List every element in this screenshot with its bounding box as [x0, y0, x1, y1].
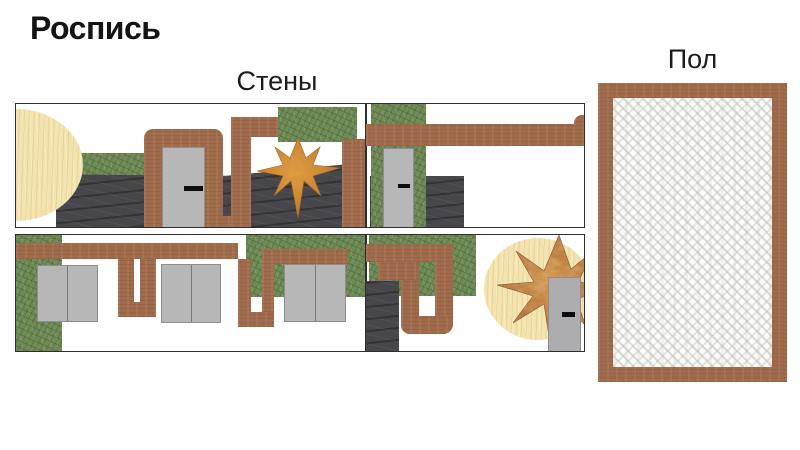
pipe-horizontal-band [366, 124, 585, 146]
wardrobe-doors [284, 264, 346, 322]
pipe-u-gap [134, 259, 140, 302]
door-leaf [38, 266, 68, 321]
starburst-motif [251, 132, 363, 228]
page-title: Роспись [30, 10, 160, 47]
mural-design-slide: Роспись Стены Пол [0, 0, 800, 450]
pipe-loop-hole [251, 297, 262, 312]
door-leaf [162, 265, 192, 322]
door [383, 148, 414, 228]
pipe-horizontal-band [16, 243, 238, 259]
door-handle [562, 312, 575, 317]
pipe-horizontal-band-2 [262, 249, 348, 264]
door-leaf [68, 266, 97, 321]
pipe-bottom-segment [238, 312, 274, 327]
floor-section-label: Пол [630, 44, 755, 75]
floor-plan-frame [598, 83, 787, 382]
slate-block [366, 281, 399, 352]
door-handle [398, 184, 410, 188]
door-leaf [316, 265, 346, 321]
floor-weave-pattern [613, 98, 772, 367]
pipe-spiral-inner-leg [401, 278, 419, 334]
door-handle [184, 186, 203, 191]
wardrobe-doors [161, 264, 221, 323]
pipe-end-nub [574, 115, 585, 126]
walls-section-label: Стены [177, 66, 377, 97]
walls-elevation-top [15, 103, 585, 228]
wardrobe-doors [37, 265, 98, 322]
door-leaf [285, 265, 316, 321]
walls-elevation-bottom [15, 234, 585, 352]
pipe-spiral-inner-band [378, 262, 419, 280]
door-leaf [192, 265, 221, 322]
wall-segment-divider [365, 104, 367, 227]
